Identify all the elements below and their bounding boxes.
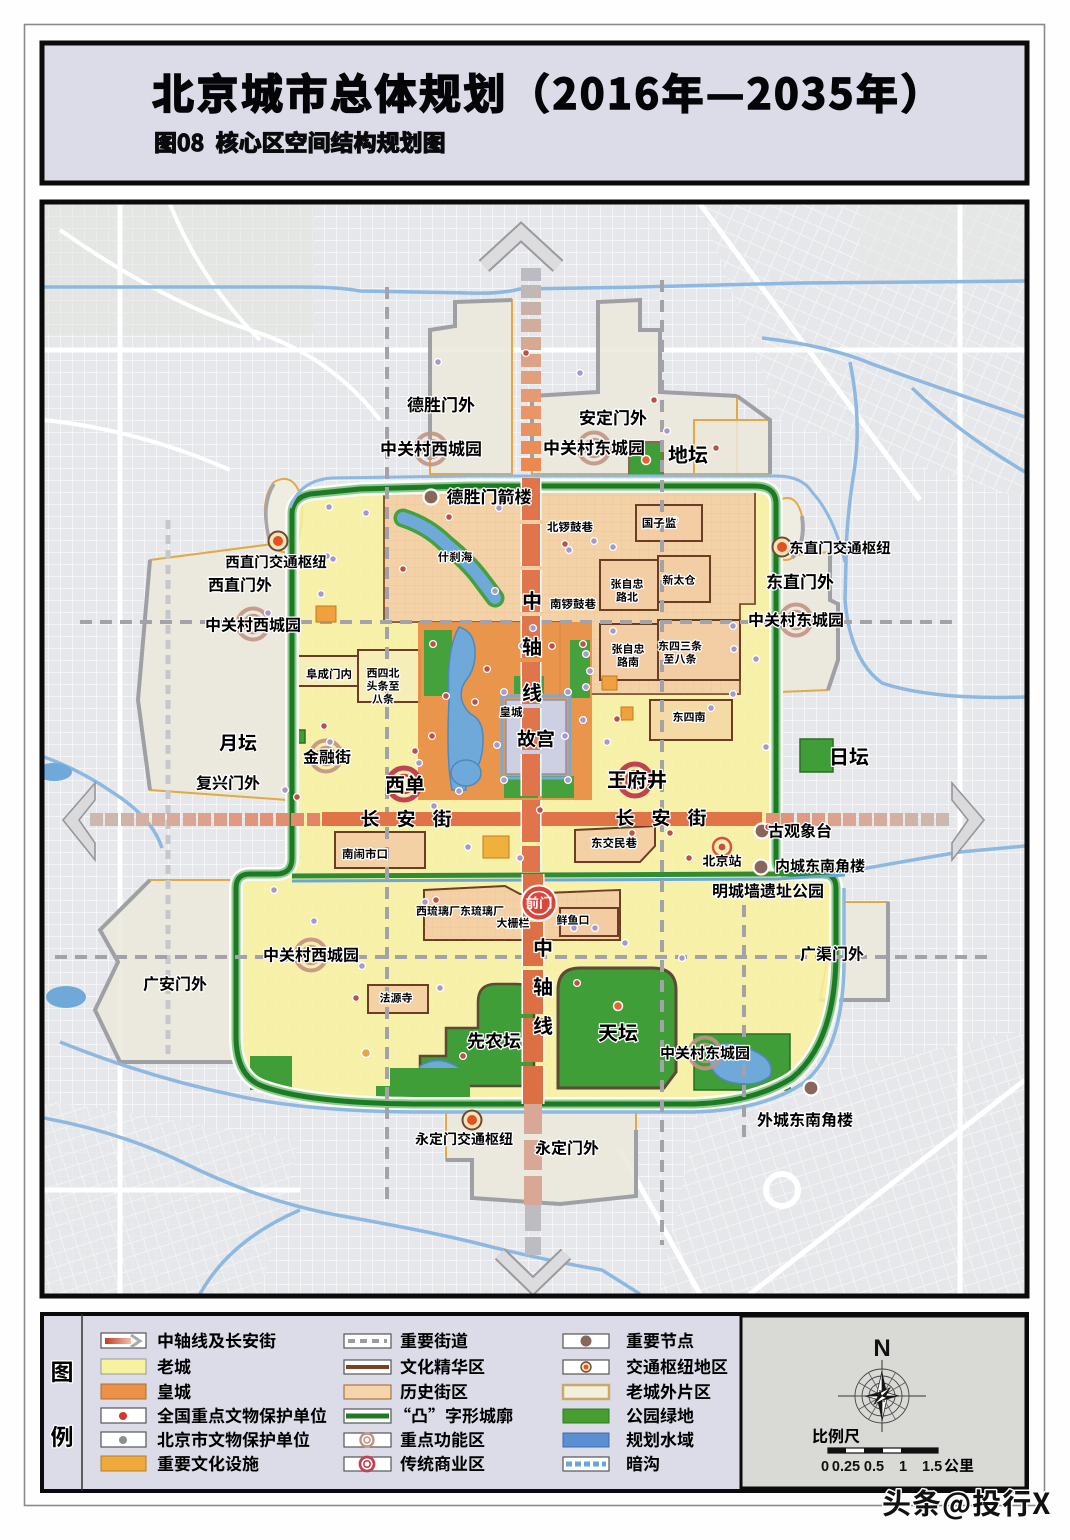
svg-text:0: 0 [821, 1459, 829, 1475]
svg-text:1.5: 1.5 [922, 1459, 942, 1475]
svg-text:0.5: 0.5 [864, 1459, 884, 1475]
svg-text:1: 1 [899, 1459, 907, 1475]
svg-text:0.25: 0.25 [832, 1459, 860, 1475]
svg-text:N: N [873, 1335, 890, 1362]
